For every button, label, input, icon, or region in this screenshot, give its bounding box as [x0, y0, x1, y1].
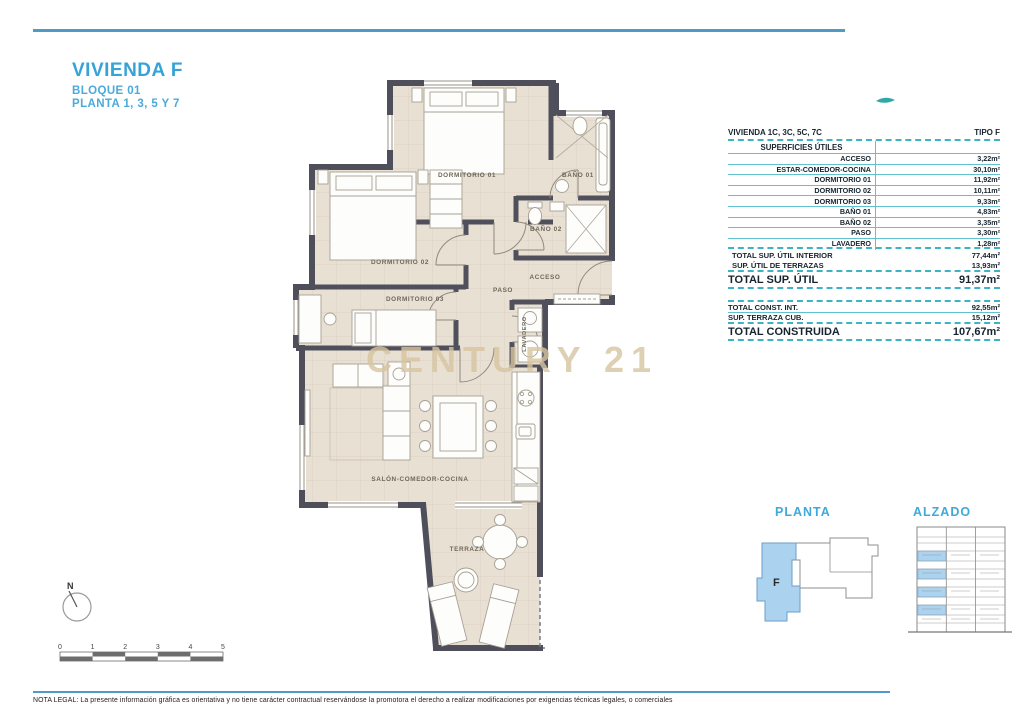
room-label-dormitorio-03: DORMITORIO 03	[386, 296, 444, 303]
room-label-paso: PASO	[493, 287, 513, 294]
row-value: 13,93m²	[866, 261, 1000, 270]
total-util-row: TOTAL SUP. ÚTIL91,37m²	[728, 272, 1000, 289]
row-label: TOTAL SUP. ÚTIL INTERIOR	[728, 251, 866, 260]
room-label-terraza: TERRAZA	[450, 546, 485, 553]
row-label: SUP. TERRAZA CUB.	[728, 313, 864, 322]
table-header-row: VIVIENDA 1C, 3C, 5C, 7C TIPO F	[728, 126, 1000, 141]
row-label: TOTAL CONSTRUIDA	[728, 326, 864, 338]
scale-tick: 2	[123, 644, 127, 651]
row-value: 92,55m²	[864, 303, 1000, 312]
surfaces-table: VIVIENDA 1C, 3C, 5C, 7C TIPO F SUPERFICI…	[728, 126, 1000, 341]
const-row: SUP. TERRAZA CUB.15,12m²	[728, 313, 1000, 324]
room-label-salon: SALÓN-COMEDOR-COCINA	[371, 474, 468, 483]
row-label: BAÑO 01	[728, 207, 871, 216]
row-value: 10,11m²	[871, 186, 1000, 195]
table-section-row: SUPERFICIES ÚTILES	[728, 141, 1000, 154]
row-value: 107,67m²	[864, 326, 1000, 338]
scale-bar: 0 1 2 3 4 5	[58, 644, 225, 661]
table-header-left: VIVIENDA 1C, 3C, 5C, 7C	[728, 128, 974, 137]
row-value: 3,35m²	[871, 218, 1000, 227]
century21-watermark: CENTURY 21	[366, 339, 658, 380]
planta-key-plan: PLANTA F	[757, 505, 878, 621]
scale-tick: 3	[156, 644, 160, 651]
table-row: ESTAR-COMEDOR-COCINA30,10m²	[728, 165, 1000, 176]
room-label-bano-02: BAÑO 02	[530, 224, 562, 233]
table-row: DORMITORIO 039,33m²	[728, 196, 1000, 207]
row-value: 3,30m²	[871, 228, 1000, 237]
bottom-rule	[33, 691, 890, 693]
floor-plan: DORMITORIO 01 BAÑO 01 DORMITORIO 02 BAÑO…	[0, 0, 1024, 725]
row-value: 30,10m²	[871, 165, 1000, 174]
table-row: PASO3,30m²	[728, 228, 1000, 239]
row-label: ACCESO	[728, 154, 871, 163]
row-label: TOTAL CONST. INT.	[728, 303, 864, 312]
legal-note: NOTA LEGAL: La presente información gráf…	[33, 697, 673, 704]
floorplan-sheet: VIVIENDA F BLOQUE 01 PLANTA 1, 3, 5 Y 7	[0, 0, 1024, 725]
table-row: DORMITORIO 0111,92m²	[728, 175, 1000, 186]
table-row: ACCESO3,22m²	[728, 154, 1000, 165]
row-value: 4,83m²	[871, 207, 1000, 216]
room-label-bano-01: BAÑO 01	[562, 170, 594, 179]
subtotal-row: TOTAL SUP. ÚTIL INTERIOR77,44m²	[728, 249, 1000, 261]
row-value: 1,28m²	[871, 239, 1000, 248]
row-label: PASO	[728, 228, 871, 237]
room-label-dormitorio-02: DORMITORIO 02	[371, 259, 429, 266]
row-label: ESTAR-COMEDOR-COCINA	[728, 165, 871, 174]
scale-tick: 1	[91, 644, 95, 651]
scale-tick: 4	[188, 644, 192, 651]
row-label: DORMITORIO 01	[728, 175, 871, 184]
subtotal-row: SUP. ÚTIL DE TERRAZAS13,93m²	[728, 261, 1000, 273]
room-label-dormitorio-01: DORMITORIO 01	[438, 172, 496, 179]
scale-tick: 0	[58, 644, 62, 651]
row-value: 77,44m²	[866, 251, 1000, 260]
room-label-acceso: ACCESO	[530, 274, 561, 281]
north-compass: N	[63, 581, 91, 621]
const-row: TOTAL CONST. INT.92,55m²	[728, 302, 1000, 313]
alzado-key-plan: ALZADO	[908, 505, 1012, 632]
table-section-title: SUPERFICIES ÚTILES	[728, 143, 875, 152]
row-label: BAÑO 02	[728, 218, 871, 227]
planta-label: PLANTA	[775, 505, 831, 519]
row-value: 9,33m²	[871, 197, 1000, 206]
table-spacer	[728, 289, 1000, 300]
table-row: DORMITORIO 0210,11m²	[728, 186, 1000, 197]
scale-tick: 5	[221, 644, 225, 651]
unit-f-letter: F	[773, 577, 780, 589]
row-label: LAVADERO	[728, 239, 871, 248]
terrace-open-edge	[540, 580, 545, 648]
row-label: SUP. ÚTIL DE TERRAZAS	[728, 261, 866, 270]
total-construida-row: TOTAL CONSTRUIDA107,67m²	[728, 324, 1000, 341]
table-row: LAVADERO1,28m²	[728, 239, 1000, 250]
row-label: DORMITORIO 02	[728, 186, 871, 195]
row-value: 15,12m²	[864, 313, 1000, 322]
row-label: DORMITORIO 03	[728, 197, 871, 206]
table-row: BAÑO 023,35m²	[728, 218, 1000, 229]
row-value: 3,22m²	[871, 154, 1000, 163]
table-row: BAÑO 014,83m²	[728, 207, 1000, 218]
row-value: 11,92m²	[871, 175, 1000, 184]
row-value: 91,37m²	[864, 274, 1000, 286]
compass-north-label: N	[67, 581, 74, 591]
decorative-swoosh	[876, 98, 895, 103]
table-header-right: TIPO F	[974, 128, 1000, 137]
table-column-divider	[875, 141, 876, 250]
row-label: TOTAL SUP. ÚTIL	[728, 274, 864, 286]
alzado-label: ALZADO	[913, 505, 971, 519]
